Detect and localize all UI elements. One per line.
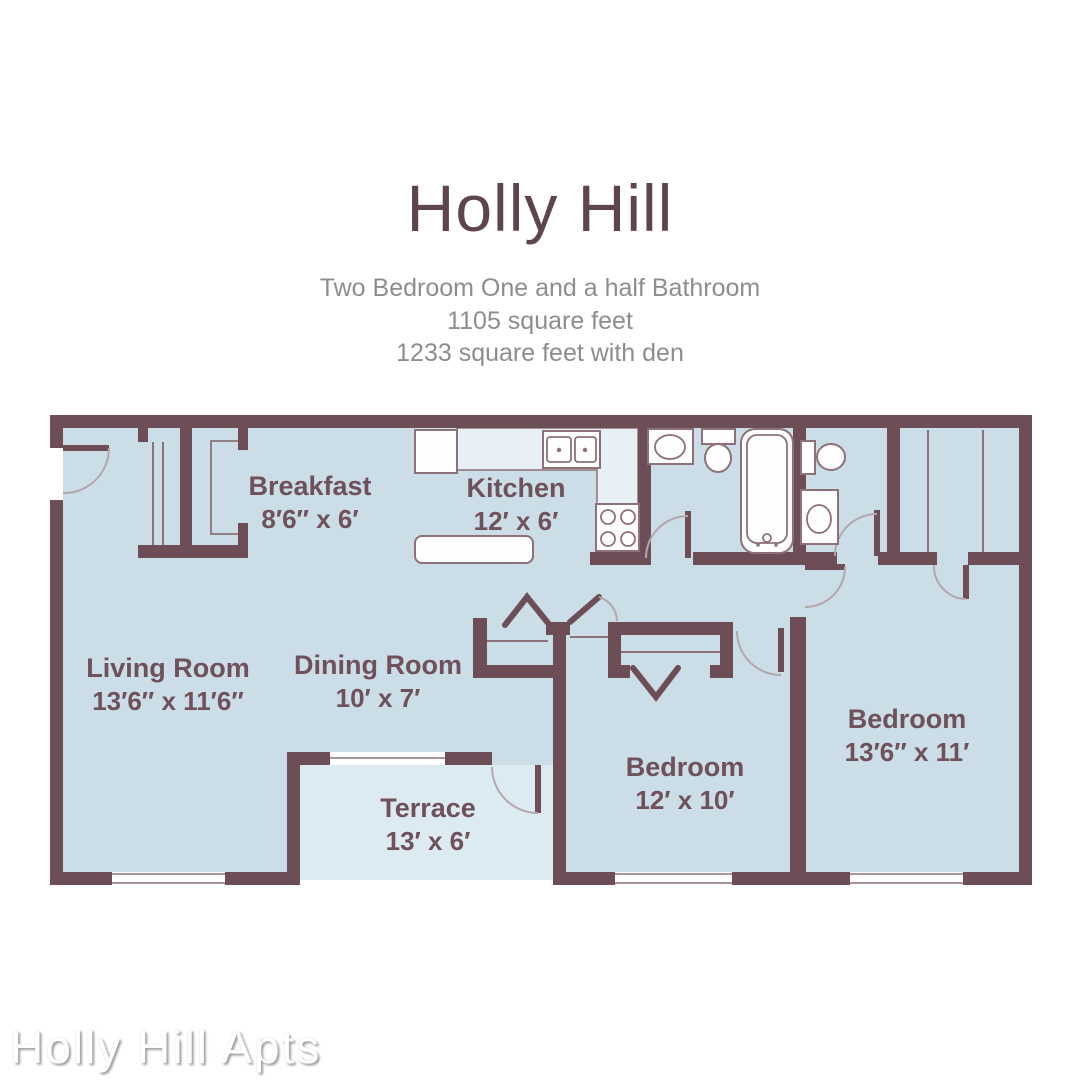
- wall-segment: [720, 635, 733, 668]
- tub-faucet: [756, 543, 760, 547]
- toilet: [702, 429, 735, 472]
- wall-segment: [878, 552, 898, 565]
- toilet-bowl: [817, 444, 845, 470]
- wall-segment: [968, 552, 1019, 565]
- wall-segment: [732, 872, 850, 885]
- wall-segment: [225, 872, 300, 885]
- wall-segment: [887, 428, 900, 553]
- wall-segment: [50, 415, 63, 448]
- floorplan-page: Holly Hill Two Bedroom One and a half Ba…: [0, 0, 1080, 1080]
- door-panel: [685, 511, 691, 558]
- refrigerator: [415, 430, 457, 473]
- room-label-breakfast: Breakfast 8′6″ x 6′: [248, 470, 371, 536]
- wall-segment: [445, 752, 492, 765]
- room-dimensions: 8′6″ x 6′: [248, 503, 371, 536]
- bathroom-vanity: [648, 429, 693, 464]
- wall-segment: [608, 622, 733, 635]
- room-name: Kitchen: [466, 472, 565, 505]
- wall-segment: [238, 523, 248, 545]
- toilet-tank: [801, 441, 815, 474]
- room-label-bedroom-1: Bedroom 12′ x 10′: [626, 751, 745, 817]
- wall-segment: [138, 545, 248, 558]
- room-name: Bedroom: [845, 703, 970, 736]
- room-dimensions: 13′6″ x 11′6″: [86, 685, 250, 718]
- wall-segment: [553, 872, 615, 885]
- room-label-terrace: Terrace 13′ x 6′: [380, 792, 476, 858]
- door-panel: [535, 765, 541, 813]
- bathtub: [741, 429, 793, 553]
- wall-segment: [300, 752, 330, 765]
- room-name: Dining Room: [294, 649, 462, 682]
- wall-segment: [793, 552, 837, 565]
- wall-segment: [287, 752, 300, 872]
- room-name: Terrace: [380, 792, 476, 825]
- room-dimensions: 13′ x 6′: [380, 825, 476, 858]
- wall-segment: [710, 665, 733, 678]
- door-panel: [63, 445, 109, 451]
- room-dimensions: 12′ x 10′: [626, 784, 745, 817]
- wall-segment: [1019, 415, 1032, 885]
- wall-segment: [608, 665, 630, 678]
- room-name: Living Room: [86, 652, 250, 685]
- tub-faucet: [774, 543, 778, 547]
- door-panel: [805, 564, 845, 570]
- double-sink: [543, 431, 600, 468]
- wall-segment: [553, 622, 566, 885]
- room-name: Bedroom: [626, 751, 745, 784]
- room-dimensions: 12′ x 6′: [466, 505, 565, 538]
- half-bath-fixtures: [801, 441, 845, 544]
- room-label-living-room: Living Room 13′6″ x 11′6″: [86, 652, 250, 718]
- sink-drain: [583, 448, 587, 452]
- wall-segment: [50, 500, 63, 885]
- wall-segment: [590, 552, 651, 565]
- toilet-tank: [702, 429, 735, 444]
- door-panel: [778, 628, 784, 672]
- wall-segment: [138, 428, 148, 442]
- room-dimensions: 13′6″ x 11′: [845, 736, 970, 769]
- wall-segment: [898, 552, 937, 565]
- watermark: Holly Hill Apts: [10, 1020, 321, 1074]
- room-label-bedroom-2: Bedroom 13′6″ x 11′: [845, 703, 970, 769]
- wall-segment: [50, 415, 1032, 428]
- wall-segment: [608, 635, 621, 668]
- entry-opening: [50, 448, 63, 500]
- floorplan-drawing: [0, 0, 1080, 1080]
- door-panel: [874, 510, 880, 556]
- washer: [801, 490, 838, 544]
- toilet-bowl: [705, 444, 731, 472]
- wall-segment: [790, 617, 806, 872]
- room-name: Breakfast: [248, 470, 371, 503]
- wall-segment: [473, 665, 566, 678]
- door-panel: [963, 565, 969, 599]
- sink-drain: [557, 448, 561, 452]
- room-dimensions: 10′ x 7′: [294, 682, 462, 715]
- range: [596, 504, 639, 551]
- kitchen-island: [415, 536, 533, 563]
- room-label-dining-room: Dining Room 10′ x 7′: [294, 649, 462, 715]
- floorplan: Breakfast 8′6″ x 6′ Kitchen 12′ x 6′ Liv…: [0, 0, 1080, 1080]
- wall-segment: [238, 428, 248, 450]
- room-label-kitchen: Kitchen 12′ x 6′: [466, 472, 565, 538]
- wall-segment: [180, 428, 192, 558]
- wall-segment: [50, 872, 112, 885]
